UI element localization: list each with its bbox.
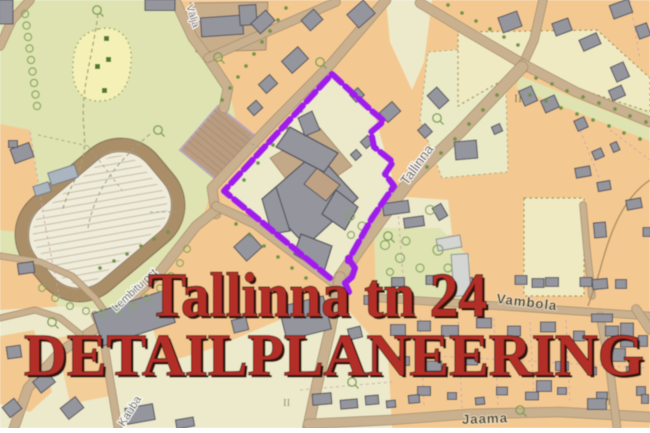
svg-text:II: II <box>283 397 291 409</box>
svg-text:II: II <box>514 91 522 105</box>
svg-text:Tallinna tn 24: Tallinna tn 24 <box>148 262 487 330</box>
svg-text:II: II <box>604 397 611 408</box>
svg-text:DETAILPLANEERING: DETAILPLANEERING <box>24 322 644 388</box>
svg-text:Jaama: Jaama <box>462 410 509 427</box>
